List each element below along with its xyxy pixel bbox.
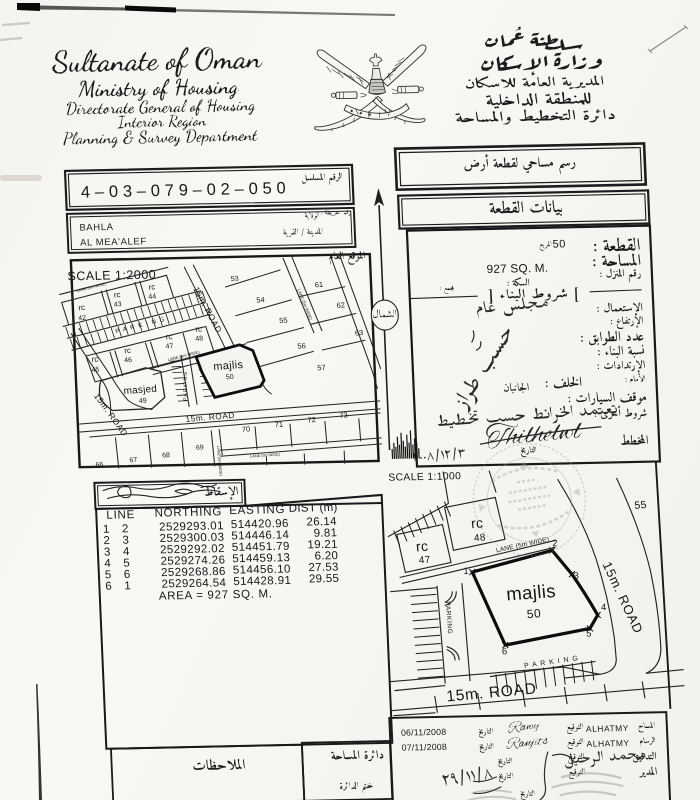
- svg-text:majlis: majlis: [505, 580, 556, 605]
- svg-text:3: 3: [573, 571, 579, 582]
- svg-text:4: 4: [104, 558, 112, 570]
- svg-text:2: 2: [103, 535, 110, 547]
- svg-text:57: 57: [317, 363, 326, 373]
- svg-text:LINE: LINE: [106, 509, 135, 522]
- svg-text:54: 54: [256, 295, 265, 305]
- svg-text:1: 1: [463, 566, 469, 577]
- svg-text:61: 61: [314, 280, 323, 290]
- svg-text:rc: rc: [195, 324, 203, 333]
- svg-text:5: 5: [123, 557, 130, 569]
- svg-text:majlis: majlis: [213, 359, 244, 373]
- svg-text:6: 6: [502, 646, 508, 657]
- svg-text:rc: rc: [113, 290, 121, 299]
- svg-text:DIST (m): DIST (m): [289, 502, 338, 515]
- svg-text:514428.91: 514428.91: [233, 575, 291, 588]
- svg-text:4: 4: [601, 602, 607, 613]
- svg-text:71: 71: [274, 420, 283, 430]
- svg-text:4: 4: [123, 546, 131, 558]
- svg-text:EASTING: EASTING: [229, 504, 286, 517]
- svg-text:66: 66: [95, 461, 104, 469]
- svg-text:42: 42: [78, 315, 87, 323]
- svg-text:1: 1: [103, 524, 110, 536]
- svg-text:07/11/2008: 07/11/2008: [401, 742, 447, 753]
- svg-text:5: 5: [586, 628, 592, 639]
- svg-text:rc: rc: [124, 346, 132, 355]
- svg-text:6: 6: [105, 581, 112, 593]
- svg-text:PARKING: PARKING: [183, 370, 189, 401]
- svg-text:masjed: masjed: [123, 384, 157, 397]
- svg-text:1: 1: [124, 580, 131, 592]
- svg-text:46: 46: [124, 357, 133, 365]
- svg-text:LANE (5m WIDE): LANE (5m WIDE): [250, 452, 281, 458]
- svg-text:rc: rc: [78, 303, 86, 312]
- svg-text:68: 68: [162, 452, 171, 460]
- svg-text:06/11/2008: 06/11/2008: [401, 727, 447, 738]
- svg-text:47: 47: [418, 555, 431, 567]
- svg-text:rc: rc: [91, 355, 99, 364]
- svg-text:70: 70: [241, 424, 250, 434]
- svg-text:47: 47: [165, 343, 174, 351]
- svg-text:67: 67: [129, 457, 138, 465]
- svg-text:PARKING: PARKING: [444, 601, 454, 634]
- svg-text:ALHATMY: ALHATMY: [586, 738, 629, 749]
- svg-text:50: 50: [226, 374, 235, 382]
- svg-text:72: 72: [307, 415, 316, 425]
- svg-text:3: 3: [122, 535, 129, 547]
- svg-text:5: 5: [105, 569, 112, 581]
- svg-text:SCALE 1:1000: SCALE 1:1000: [388, 471, 461, 484]
- svg-text:3: 3: [104, 546, 111, 558]
- svg-text:2: 2: [122, 523, 129, 535]
- svg-text:69: 69: [196, 444, 205, 452]
- svg-text:56: 56: [297, 341, 306, 351]
- svg-text:45: 45: [91, 367, 100, 375]
- svg-text:rc: rc: [165, 332, 173, 341]
- svg-text:ALHATMY: ALHATMY: [586, 723, 629, 734]
- svg-text:55: 55: [634, 499, 647, 512]
- svg-text:rc: rc: [148, 282, 156, 291]
- svg-text:AL MEA'ALEF: AL MEA'ALEF: [80, 236, 147, 248]
- svg-text:rc: rc: [415, 538, 429, 555]
- svg-text:63: 63: [354, 328, 363, 338]
- svg-text:43: 43: [113, 301, 122, 309]
- svg-text:927 SQ. M.: 927 SQ. M.: [486, 261, 548, 276]
- svg-text:50: 50: [526, 606, 542, 621]
- svg-text:48: 48: [474, 532, 487, 544]
- svg-text:44: 44: [148, 293, 157, 301]
- svg-text:6: 6: [124, 569, 131, 581]
- svg-text:62: 62: [336, 300, 345, 310]
- svg-text:4–03–079–02–050: 4–03–079–02–050: [81, 179, 291, 201]
- svg-text:50: 50: [552, 238, 566, 250]
- svg-text:BAHLA: BAHLA: [79, 222, 114, 234]
- svg-text:AREA = 927 SQ. M.: AREA = 927 SQ. M.: [159, 588, 273, 602]
- svg-text:49: 49: [139, 398, 148, 406]
- svg-text:48: 48: [195, 335, 204, 343]
- svg-text:73: 73: [339, 410, 348, 420]
- svg-text:29.55: 29.55: [309, 573, 340, 586]
- svg-text:2: 2: [552, 538, 558, 549]
- svg-text:53: 53: [230, 276, 239, 284]
- svg-text:NORTHING: NORTHING: [154, 506, 222, 519]
- svg-text:55: 55: [279, 316, 288, 326]
